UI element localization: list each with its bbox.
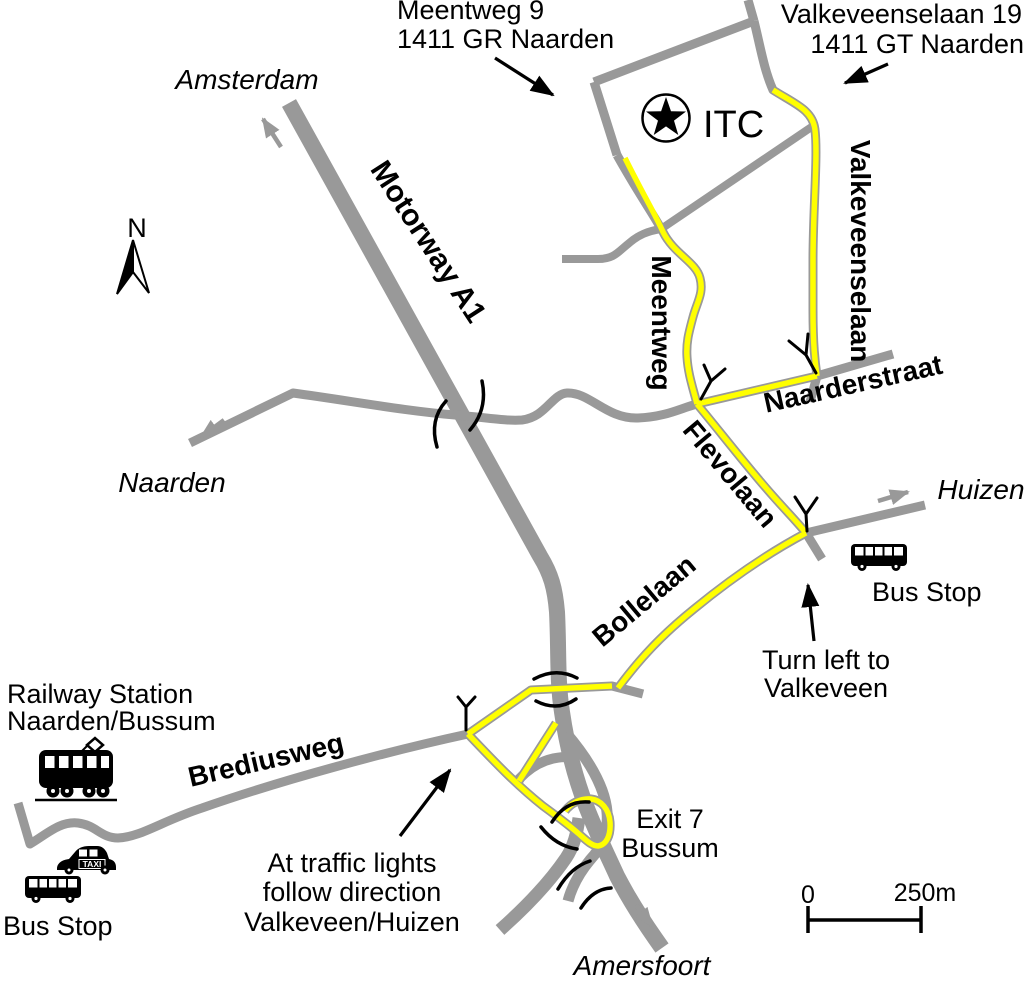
city-naarden: Naarden xyxy=(118,467,225,498)
address-valkeveenselaan-line2: 1411 GT Naarden xyxy=(810,29,1024,59)
traffic-lights-line1: At traffic lights xyxy=(267,848,436,878)
scale-bar: 0 250m xyxy=(801,879,956,933)
bus-icon xyxy=(25,876,81,903)
traffic-lights-line2: follow direction xyxy=(263,877,442,907)
bus-stop-right-label: Bus Stop xyxy=(872,577,982,607)
taxi-sign-label: TAXI xyxy=(83,859,102,869)
railway-station-line2: Naarden/Bussum xyxy=(7,706,216,736)
turn-left-line2: Valkeveen xyxy=(764,673,888,703)
star-icon xyxy=(643,95,690,142)
city-huizen: Huizen xyxy=(937,474,1024,505)
arrow-traffic-lights-icon xyxy=(400,770,450,836)
railway-station-line1: Railway Station xyxy=(7,679,193,709)
address-meentweg-line1: Meentweg 9 xyxy=(397,0,544,25)
city-amersfoort: Amersfoort xyxy=(572,950,712,981)
tram-icon xyxy=(35,738,117,800)
scale-start-label: 0 xyxy=(801,881,815,909)
traffic-signal-icon xyxy=(458,697,475,730)
bridge-marks-icon xyxy=(434,381,611,908)
itc-label: ITC xyxy=(703,104,764,146)
arrow-valkeveenselaan-address-icon xyxy=(845,64,888,83)
address-valkeveenselaan-line1: Valkeveenselaan 19 xyxy=(781,0,1022,29)
city-amsterdam: Amsterdam xyxy=(173,64,318,95)
exit7-line1: Exit 7 xyxy=(636,804,704,834)
address-meentweg-line2: 1411 GR Naarden xyxy=(397,24,614,54)
route-ramp-short xyxy=(519,723,556,781)
traffic-lights-line3: Valkeveen/Huizen xyxy=(244,907,460,937)
arrow-to-huizen-icon xyxy=(878,492,908,501)
bus-icon xyxy=(851,544,907,571)
route-map-page: N TAXI 0 250m xyxy=(0,0,1024,983)
turn-left-line1: Turn left to xyxy=(762,645,890,675)
road-label-valkeveenselaan: Valkeveenselaan xyxy=(845,140,876,363)
road-itc-lane xyxy=(562,126,813,259)
road-label-meentweg: Meentweg xyxy=(646,255,677,390)
labels: Meentweg 9 1411 GR Naarden Valkeveensela… xyxy=(3,0,1024,981)
scale-end-label: 250m xyxy=(894,879,957,907)
exit7-line2: Bussum xyxy=(621,833,719,863)
route-map-svg: N TAXI 0 250m xyxy=(0,0,1024,983)
arrow-meentweg-address-icon xyxy=(495,58,553,95)
road-label-flevolaan: Flevolaan xyxy=(677,414,784,533)
taxi-icon: TAXI xyxy=(57,846,116,875)
arrow-turn-left-icon xyxy=(808,585,814,641)
compass: N xyxy=(117,213,149,294)
compass-north-label: N xyxy=(127,213,147,243)
bus-stop-left-label: Bus Stop xyxy=(3,911,113,941)
road-label-bollelaan: Bollelaan xyxy=(586,549,701,653)
arrow-to-amsterdam-icon xyxy=(263,119,281,147)
road-label-motorway-a1: Motorway A1 xyxy=(364,155,493,329)
north-needle-icon xyxy=(117,240,149,294)
